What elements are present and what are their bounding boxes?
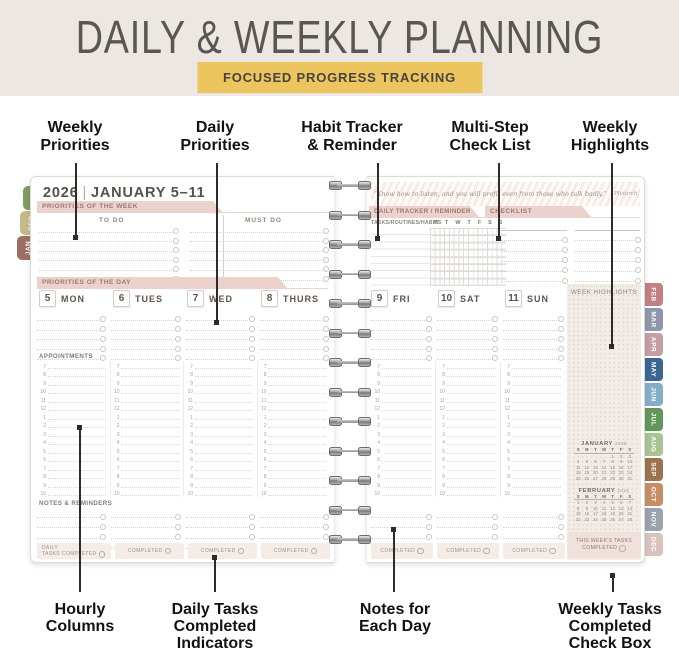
hour-row: 12 <box>111 404 184 413</box>
spiral-loop <box>329 506 371 515</box>
hour-column: 78910111212345678910 <box>110 361 184 497</box>
hour-row: 10 <box>111 387 184 396</box>
daily-completed-row: COMPLETEDCOMPLETEDCOMPLETED <box>371 543 565 559</box>
day-header-fri: 9FRI <box>371 290 411 307</box>
ruled-line <box>501 241 567 251</box>
ruled-line <box>111 528 179 538</box>
planner-right-page: “Know how to listen, and you will profit… <box>366 176 645 563</box>
pointer-line <box>498 163 500 239</box>
product-feature-image: DAILY & WEEKLY PLANNING FOCUSED PROGRESS… <box>0 0 679 655</box>
hour-row: 10 <box>258 489 331 498</box>
hour-row: 7 <box>436 361 500 370</box>
ruled-line <box>371 321 431 331</box>
hour-row: 7 <box>37 361 110 370</box>
ruled-line <box>186 331 254 341</box>
hour-row: 7 <box>258 361 331 370</box>
ruled-line <box>186 508 254 518</box>
ruled-line <box>111 321 179 331</box>
hour-row: 5 <box>258 446 331 455</box>
pointer-line <box>75 163 77 238</box>
hour-row: 9 <box>371 378 435 387</box>
ruled-line <box>437 321 497 331</box>
week-title: 2026|JANUARY 5–11 <box>43 185 205 201</box>
hour-row: 2 <box>371 421 435 430</box>
completed-box: COMPLETED <box>371 543 433 559</box>
hour-row: 7 <box>371 361 435 370</box>
completed-box: COMPLETED <box>437 543 499 559</box>
hour-row: 2 <box>258 421 331 430</box>
ruled-line <box>575 262 641 272</box>
mini-calendar-february: FEBRUARY2026SMTWTFS123456789101112131415… <box>567 488 641 523</box>
hour-column: 78910111212345678910 <box>257 361 331 497</box>
daily-tasks-completed-box: DAILYTASKS COMPLETED <box>37 543 111 559</box>
ruled-line <box>371 350 431 360</box>
check-circle-icon <box>483 548 490 555</box>
hourly-columns: 7891011121234567891078910111212345678910… <box>371 361 565 497</box>
hour-row: 12 <box>37 404 110 413</box>
spiral-loop <box>329 388 371 397</box>
ruled-line <box>190 252 329 262</box>
ruled-line <box>501 252 567 262</box>
ruled-line <box>260 518 328 528</box>
completed-box: COMPLETED <box>503 543 565 559</box>
hour-row: 5 <box>111 446 184 455</box>
annotation-daily-priorities: DailyPriorities <box>180 119 249 155</box>
hour-row: 7 <box>184 361 257 370</box>
hour-row: 10 <box>37 387 110 396</box>
hour-row: 10 <box>184 489 257 498</box>
hour-row: 9 <box>258 480 331 489</box>
ruled-line <box>501 262 567 272</box>
annotation-daily-tasks-completed: Daily TasksCompletedIndicators <box>172 601 259 652</box>
spiral-loop <box>329 240 371 249</box>
ruled-line <box>575 241 641 251</box>
day-header-row: 9FRI10SAT11SUN <box>371 290 567 308</box>
hour-row: 1 <box>501 412 565 421</box>
spiral-loop <box>329 447 371 456</box>
ruled-line <box>503 528 563 538</box>
subtitle-badge: FOCUSED PROGRESS TRACKING <box>197 62 482 93</box>
hour-row: 12 <box>501 404 565 413</box>
weekly-priorities-lines <box>39 223 328 281</box>
hour-row: 12 <box>258 404 331 413</box>
ruled-line <box>186 350 254 360</box>
ruled-line <box>371 311 431 321</box>
ruled-line <box>111 508 179 518</box>
pointer-line <box>79 427 81 592</box>
hour-row: 3 <box>184 429 257 438</box>
week-highlights-label: WEEK HIGHLIGHTS <box>567 289 641 296</box>
hour-row: 1 <box>371 412 435 421</box>
spiral-loop <box>329 476 371 485</box>
check-circle-icon <box>238 548 245 555</box>
ruled-line <box>501 231 567 241</box>
pointer-line <box>611 163 613 347</box>
hour-row: 8 <box>111 472 184 481</box>
annotation-multi-step-checklist: Multi-StepCheck List <box>450 119 531 155</box>
ruled-line <box>111 518 179 528</box>
hour-row: 11 <box>436 395 500 404</box>
hour-row: 10 <box>436 489 500 498</box>
ruled-line <box>186 311 254 321</box>
ruled-line <box>190 233 329 243</box>
hour-row: 10 <box>184 387 257 396</box>
ruled-line <box>260 321 328 331</box>
hour-row: 8 <box>436 370 500 379</box>
pointer-line <box>214 557 216 592</box>
ruled-line <box>575 231 641 241</box>
habit-tracker-grid <box>430 228 506 286</box>
hour-row: 4 <box>436 438 500 447</box>
hour-row: 8 <box>258 370 331 379</box>
hour-row: 11 <box>501 395 565 404</box>
checklist-lines <box>501 221 640 282</box>
hour-row: 6 <box>436 455 500 464</box>
hour-row: 4 <box>184 438 257 447</box>
hour-row: 6 <box>501 455 565 464</box>
hour-row: 8 <box>371 472 435 481</box>
ruled-line <box>190 261 329 271</box>
hour-column: 78910111212345678910 <box>500 361 565 497</box>
pointer-line <box>393 529 395 592</box>
ruled-line <box>186 528 254 538</box>
hour-row: 10 <box>371 387 435 396</box>
annotation-notes-each-day: Notes forEach Day <box>359 601 431 635</box>
hour-row: 10 <box>258 387 331 396</box>
daily-completed-row: DAILYTASKS COMPLETEDCOMPLETEDCOMPLETEDCO… <box>37 543 330 559</box>
ruled-line <box>37 311 105 321</box>
ruled-line <box>37 508 105 518</box>
annotation-hourly-columns: HourlyColumns <box>46 601 114 635</box>
priorities-week-header: PRIORITIES OF THE WEEK <box>37 201 328 212</box>
hour-row: 1 <box>37 412 110 421</box>
annotation-weekly-highlights: WeeklyHighlights <box>571 119 649 155</box>
hour-row: 8 <box>184 472 257 481</box>
hour-row: 11 <box>37 395 110 404</box>
ruled-line <box>501 221 567 231</box>
ruled-line <box>575 272 641 282</box>
hour-row: 8 <box>37 370 110 379</box>
hour-row: 6 <box>111 455 184 464</box>
hour-row: 9 <box>111 480 184 489</box>
ruled-line <box>260 331 328 341</box>
ruled-line <box>503 311 563 321</box>
ruled-line <box>37 340 105 350</box>
tracker-checklist-header: DAILY TRACKER / REMINDER CHECKLIST <box>369 206 640 217</box>
hour-row: 7 <box>258 463 331 472</box>
hour-row: 6 <box>37 455 110 464</box>
hour-row: 9 <box>37 378 110 387</box>
spiral-binding <box>329 176 371 561</box>
hour-row: 10 <box>111 489 184 498</box>
quote-banner: “Know how to listen, and you will profit… <box>371 182 640 206</box>
spiral-loop <box>329 358 371 367</box>
hour-row: 3 <box>111 429 184 438</box>
check-circle-icon <box>165 548 172 555</box>
hour-row: 1 <box>436 412 500 421</box>
hour-row: 4 <box>111 438 184 447</box>
ruled-line <box>37 321 105 331</box>
ruled-line <box>501 272 567 282</box>
hour-row: 3 <box>371 429 435 438</box>
hour-row: 7 <box>436 463 500 472</box>
hour-row: 1 <box>184 412 257 421</box>
ruled-line <box>371 528 431 538</box>
daily-priorities-lines <box>371 311 563 360</box>
hour-row: 3 <box>258 429 331 438</box>
day-header-tues: 6TUES <box>113 290 163 307</box>
hour-row: 12 <box>184 404 257 413</box>
hour-row: 8 <box>258 472 331 481</box>
hour-row: 12 <box>436 404 500 413</box>
ruled-line <box>37 331 105 341</box>
check-circle-icon <box>311 548 318 555</box>
day-header-thurs: 8THURS <box>261 290 319 307</box>
hour-row: 3 <box>501 429 565 438</box>
check-circle-icon <box>99 551 106 558</box>
hour-row: 3 <box>37 429 110 438</box>
ruled-line <box>186 340 254 350</box>
hour-row: 2 <box>436 421 500 430</box>
week-highlights-column: WEEK HIGHLIGHTS JANUARY2026SMTWTFS123456… <box>567 284 641 560</box>
ruled-line <box>503 508 563 518</box>
hour-row: 12 <box>371 404 435 413</box>
completed-box: COMPLETED <box>188 543 257 559</box>
spiral-loop <box>329 211 371 220</box>
hour-row: 2 <box>111 421 184 430</box>
hour-row: 8 <box>436 472 500 481</box>
ruled-line <box>39 242 178 252</box>
hour-row: 11 <box>184 395 257 404</box>
hour-row: 9 <box>501 480 565 489</box>
hour-row: 8 <box>111 370 184 379</box>
hour-row: 5 <box>501 446 565 455</box>
day-header-mon: 5MON <box>39 290 85 307</box>
ruled-line <box>111 340 179 350</box>
ruled-line <box>371 331 431 341</box>
ruled-line <box>37 528 105 538</box>
ruled-line <box>111 350 179 360</box>
spiral-loop <box>329 329 371 338</box>
ruled-line <box>503 350 563 360</box>
check-circle-icon <box>635 278 641 284</box>
day-header-sat: 10SAT <box>438 290 480 307</box>
ruled-line <box>260 340 328 350</box>
ruled-line <box>39 252 178 262</box>
hour-row: 10 <box>37 489 110 498</box>
hour-row: 4 <box>501 438 565 447</box>
hour-row: 10 <box>436 387 500 396</box>
spiral-loop <box>329 417 371 426</box>
hour-row: 9 <box>184 480 257 489</box>
priorities-day-header: PRIORITIES OF THE DAY <box>37 277 328 288</box>
hour-row: 11 <box>111 395 184 404</box>
pointer-line <box>377 163 379 239</box>
ruled-line <box>111 331 179 341</box>
hour-row: 6 <box>371 455 435 464</box>
hour-row: 2 <box>501 421 565 430</box>
ruled-line <box>437 350 497 360</box>
check-circle-icon <box>549 548 556 555</box>
hour-row: 7 <box>371 463 435 472</box>
spiral-loop <box>329 181 371 190</box>
mini-calendars: JANUARY2026SMTWTFS1234567891011121314151… <box>567 441 641 529</box>
check-circle-icon <box>562 278 568 284</box>
hour-row: 7 <box>37 463 110 472</box>
ruled-line <box>437 518 497 528</box>
ruled-line <box>39 233 178 243</box>
ruled-line <box>437 311 497 321</box>
hour-row: 9 <box>111 378 184 387</box>
hour-row: 2 <box>37 421 110 430</box>
ruled-line <box>39 261 178 271</box>
hour-row: 11 <box>371 395 435 404</box>
hour-column: 78910111212345678910 <box>371 361 435 497</box>
hour-row: 7 <box>501 361 565 370</box>
ruled-line <box>190 223 329 233</box>
ruled-line <box>371 508 431 518</box>
hour-row: 6 <box>184 455 257 464</box>
weekly-tasks-completed-box: THIS WEEK'S TASKS COMPLETED <box>567 532 641 558</box>
annotation-habit-tracker: Habit Tracker& Reminder <box>301 119 402 155</box>
hour-row: 6 <box>258 455 331 464</box>
hour-row: 9 <box>184 378 257 387</box>
hour-row: 1 <box>111 412 184 421</box>
check-circle-icon <box>619 545 626 552</box>
spiral-loop <box>329 270 371 279</box>
annotation-weekly-priorities: WeeklyPriorities <box>40 119 109 155</box>
ruled-line <box>575 221 641 231</box>
hour-row: 9 <box>436 480 500 489</box>
ruled-line <box>371 518 431 528</box>
ruled-line <box>503 331 563 341</box>
completed-box: COMPLETED <box>115 543 184 559</box>
ruled-line <box>260 528 328 538</box>
day-header-wed: 7WED <box>187 290 233 307</box>
hour-row: 9 <box>37 480 110 489</box>
appointments-label: APPOINTMENTS <box>39 353 93 360</box>
hour-row: 7 <box>111 361 184 370</box>
ruled-line <box>39 223 178 233</box>
checklist-tab: CHECKLIST <box>485 206 591 217</box>
hour-row: 9 <box>436 378 500 387</box>
ruled-line <box>503 340 563 350</box>
page-title: DAILY & WEEKLY PLANNING <box>61 10 618 64</box>
ruled-line <box>260 311 328 321</box>
ruled-line <box>186 518 254 528</box>
hour-row: 8 <box>37 472 110 481</box>
hour-row: 7 <box>111 463 184 472</box>
ruled-line <box>437 340 497 350</box>
pointer-line <box>216 163 218 323</box>
hour-column: 78910111212345678910 <box>183 361 257 497</box>
ruled-line <box>186 321 254 331</box>
hour-row: 10 <box>371 489 435 498</box>
ruled-line <box>190 242 329 252</box>
hour-row: 1 <box>258 412 331 421</box>
day-header-sun: 11SUN <box>505 290 549 307</box>
hour-row: 8 <box>371 370 435 379</box>
hour-row: 9 <box>258 378 331 387</box>
hour-row: 5 <box>371 446 435 455</box>
hour-row: 4 <box>371 438 435 447</box>
ruled-line <box>575 252 641 262</box>
ruled-line <box>437 508 497 518</box>
hour-row: 5 <box>436 446 500 455</box>
ruled-line <box>503 518 563 528</box>
ruled-line <box>260 508 328 518</box>
ruled-line <box>437 331 497 341</box>
hour-row: 8 <box>501 370 565 379</box>
day-header-row: 5MON6TUES7WED8THURS <box>39 290 332 308</box>
spiral-loop <box>329 535 371 544</box>
hour-column: 78910111212345678910 <box>37 361 110 497</box>
hour-row: 10 <box>501 489 565 498</box>
hour-row: 9 <box>501 378 565 387</box>
hour-row: 9 <box>371 480 435 489</box>
ruled-line <box>260 350 328 360</box>
daily-tracker-tab: DAILY TRACKER / REMINDER <box>369 206 479 217</box>
hour-row: 2 <box>184 421 257 430</box>
hour-row: 5 <box>37 446 110 455</box>
hour-row: 5 <box>184 446 257 455</box>
check-circle-icon <box>417 548 424 555</box>
hour-row: 8 <box>184 370 257 379</box>
tracker-day-letters: MTWTFSS <box>430 220 506 226</box>
hour-row: 11 <box>258 395 331 404</box>
hour-row: 10 <box>501 387 565 396</box>
hour-row: 3 <box>436 429 500 438</box>
spiral-loop <box>329 299 371 308</box>
hour-column: 78910111212345678910 <box>435 361 500 497</box>
mini-calendar-january: JANUARY2026SMTWTFS1234567891011121314151… <box>567 441 641 482</box>
annotation-weekly-tasks-completed: Weekly TasksCompletedCheck Box <box>558 601 661 652</box>
ruled-line <box>37 518 105 528</box>
ruled-line <box>503 321 563 331</box>
ruled-line <box>111 311 179 321</box>
hour-row: 7 <box>184 463 257 472</box>
hour-row: 7 <box>501 463 565 472</box>
ruled-line <box>437 528 497 538</box>
hour-row: 8 <box>501 472 565 481</box>
ruled-line <box>371 340 431 350</box>
hour-row: 4 <box>37 438 110 447</box>
completed-box: COMPLETED <box>261 543 330 559</box>
notes-label: NOTES & REMINDERS <box>39 500 112 507</box>
hour-row: 4 <box>258 438 331 447</box>
pointer-line <box>612 575 614 592</box>
